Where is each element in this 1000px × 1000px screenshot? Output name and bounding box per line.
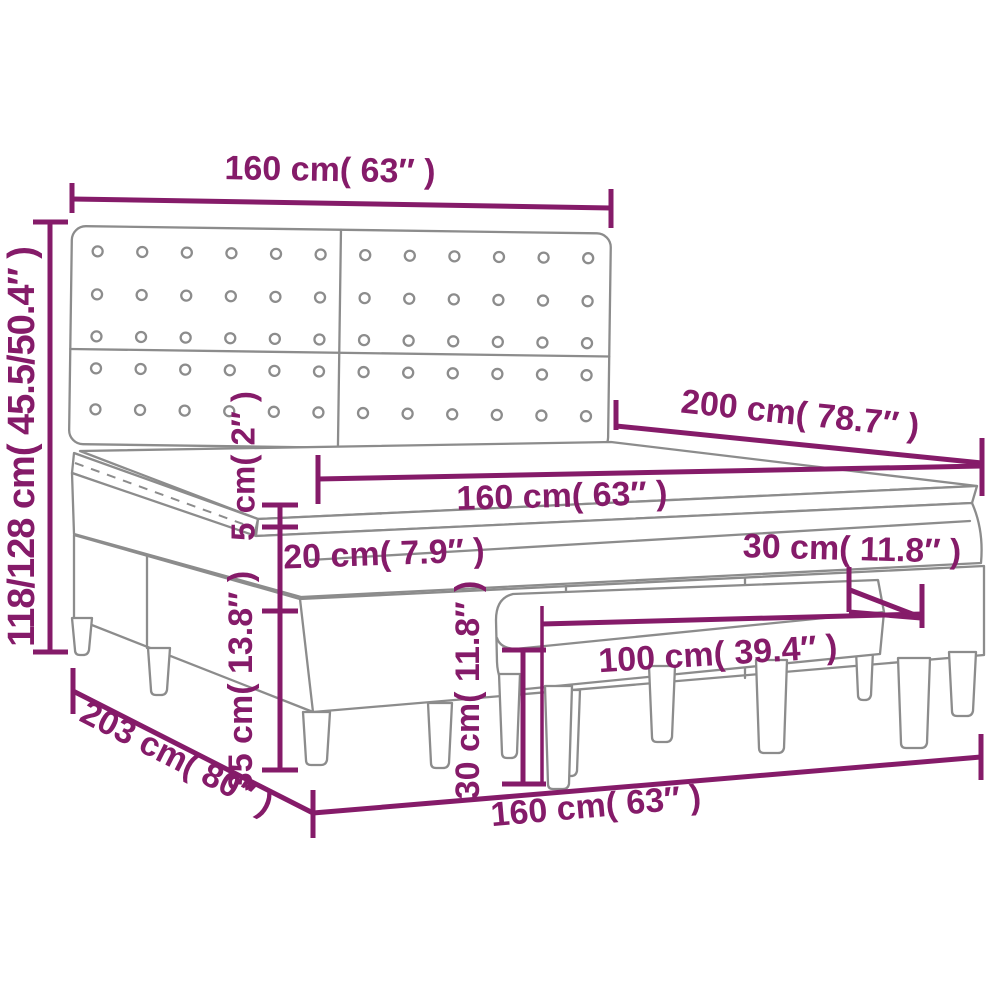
headboard — [69, 226, 611, 452]
headboard-button — [583, 296, 593, 306]
headboard-button — [403, 368, 413, 378]
headboard-button — [269, 407, 279, 417]
headboard-button — [225, 365, 235, 375]
headboard-button — [492, 369, 502, 379]
headboard-button — [405, 251, 415, 261]
headboard-button — [494, 252, 504, 262]
label-bench-height: 30 cm( 11.8″ ) — [449, 581, 487, 800]
headboard-button — [137, 247, 147, 257]
headboard-button — [539, 253, 549, 263]
headboard-button — [359, 367, 369, 377]
dim-headboard-width-line — [72, 199, 611, 208]
headboard-button — [181, 291, 191, 301]
headboard-button — [226, 248, 236, 258]
headboard-button — [91, 331, 101, 341]
headboard-button — [359, 335, 369, 345]
headboard-button — [538, 296, 548, 306]
bed-leg — [303, 712, 330, 765]
headboard-button — [360, 250, 370, 260]
headboard-button — [404, 294, 414, 304]
bed-dimension-diagram: 160 cm( 63″ ) 118/128 cm( 45.5/50.4″ ) 2… — [0, 0, 1000, 1000]
headboard-button — [492, 410, 502, 420]
bench-leg — [649, 666, 675, 742]
headboard-button — [269, 366, 279, 376]
headboard-button — [537, 338, 547, 348]
headboard-button — [315, 292, 325, 302]
headboard-button — [493, 337, 503, 347]
bed-leg — [949, 652, 976, 716]
headboard-button — [448, 336, 458, 346]
headboard-button — [181, 333, 191, 343]
headboard-button — [271, 249, 281, 259]
label-bench-depth: 30 cm( 11.8″ ) — [742, 527, 961, 571]
label-mattress-height: 20 cm( 7.9″ ) — [283, 531, 486, 576]
headboard-button — [136, 364, 146, 374]
headboard-button — [226, 291, 236, 301]
headboard-button — [314, 366, 324, 376]
headboard-button — [581, 411, 591, 421]
headboard-button — [447, 409, 457, 419]
headboard-button — [314, 334, 324, 344]
headboard-button — [358, 408, 368, 418]
headboard-button — [403, 409, 413, 419]
bench-leg — [499, 674, 520, 758]
headboard-button — [270, 292, 280, 302]
headboard-button — [182, 248, 192, 258]
bench-leg — [756, 660, 787, 753]
label-overall-height: 118/128 cm( 45.5/50.4″ ) — [1, 247, 43, 647]
headboard-button — [93, 246, 103, 256]
headboard-button — [448, 368, 458, 378]
label-topper-height: 5 cm( 2″ ) — [225, 391, 262, 541]
label-base-height: 35 cm( 13.8″ ) — [222, 571, 260, 791]
headboard-button — [92, 289, 102, 299]
headboard-button — [180, 406, 190, 416]
headboard-button — [225, 333, 235, 343]
headboard-button — [581, 370, 591, 380]
headboard-button — [136, 332, 146, 342]
label-mattress-width: 160 cm( 63″ ) — [456, 474, 668, 518]
headboard-button — [493, 295, 503, 305]
headboard-button — [449, 294, 459, 304]
headboard-button — [91, 363, 101, 373]
headboard-button — [537, 370, 547, 380]
headboard-button — [135, 405, 145, 415]
bench-leg — [545, 686, 572, 789]
headboard-button — [137, 290, 147, 300]
headboard-button — [270, 334, 280, 344]
bed-leg — [72, 618, 92, 655]
headboard-button — [583, 253, 593, 263]
headboard-button — [582, 338, 592, 348]
headboard-button — [360, 293, 370, 303]
headboard-button — [180, 365, 190, 375]
headboard-button — [316, 249, 326, 259]
label-headboard-width: 160 cm( 63″ ) — [224, 149, 436, 191]
headboard-button — [404, 336, 414, 346]
headboard-button — [313, 407, 323, 417]
bed-leg — [898, 658, 930, 748]
headboard-button — [536, 411, 546, 421]
bed-leg — [148, 648, 170, 695]
headboard-button — [90, 404, 100, 414]
headboard-button — [449, 251, 459, 261]
